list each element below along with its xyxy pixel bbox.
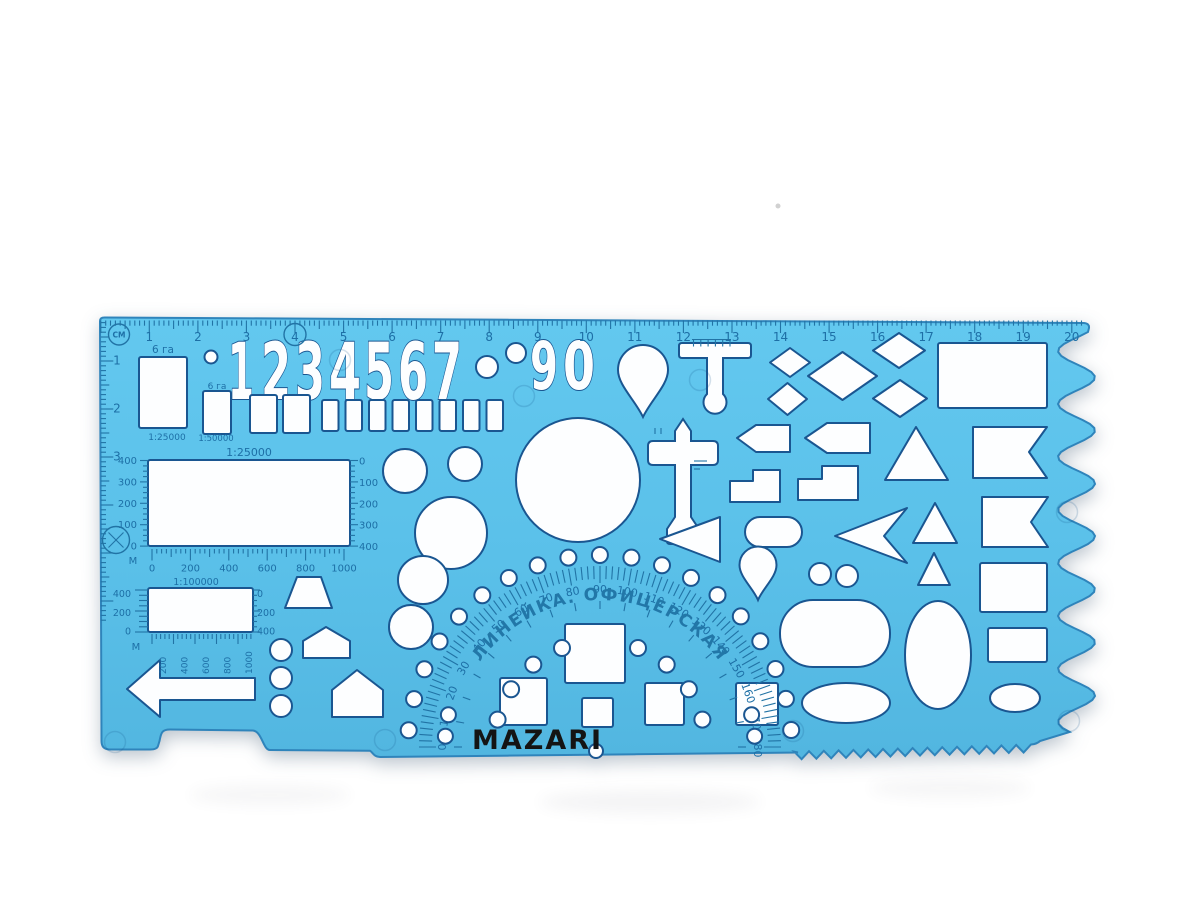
map-rect-100000 [148,588,253,632]
scale-number: 200 [257,608,275,619]
map-rect-25000 [148,460,350,546]
ruler-number: 7 [437,330,445,344]
ruler-number: 18 [967,330,982,344]
protractor-hole [406,691,422,707]
circle-cutout [476,356,498,378]
protractor-hole [503,681,519,697]
ruler-number: 17 [918,330,933,344]
protractor-hole [683,570,699,586]
scale-number: 0 [149,564,155,575]
protractor-hole [451,609,467,625]
area-square-label: 6 га [208,382,227,392]
protractor-hole [530,557,546,573]
ruler-number: 10 [579,330,594,344]
protractor-hole [778,691,794,707]
ellipse-cutout [398,556,448,604]
square-cutout [487,400,504,431]
square-cutout [322,400,339,431]
protractor-hole [592,547,608,563]
protractor-hole [432,634,448,650]
ruler-number: 9 [534,330,542,344]
square-cutout [346,400,363,431]
ruler-number: 3 [243,330,251,344]
scale-number: 100 [118,520,137,531]
template-photo: 123456790 123456789101112131415161718192… [0,0,1200,900]
square-cutout [645,683,684,725]
ruler-number: 11 [627,330,642,344]
scale-number: 400 [118,456,137,467]
ruler-number: 1 [113,354,121,368]
ruler-number: 15 [821,330,836,344]
area-square-scale: 1:50000 [198,434,233,444]
ruler-number: 20 [1064,330,1079,344]
scale-number: 0 [125,627,131,638]
ellipse-vertical-cutout [905,601,971,709]
ruler-number: 5 [340,330,348,344]
scale-number: 200 [113,608,131,619]
brand-text: MAZARI [472,725,603,756]
ruler-number: 19 [1016,330,1031,344]
protractor-hole [744,707,759,722]
stencil-ruler: 123456790 123456789101112131415161718192… [100,318,1095,760]
ruler-number: 12 [676,330,691,344]
protractor-hole [441,707,456,722]
protractor-hole [681,681,697,697]
protractor-hole [554,640,570,656]
ruler-number: 13 [724,330,739,344]
ruler-number: 8 [485,330,493,344]
circle-cutout [809,563,831,585]
protractor-hole [733,608,749,624]
area-square-scale: 1:25000 [148,433,186,443]
circle-cutout [205,351,218,364]
dust-speck [776,204,781,209]
scale-number: 400 [359,542,378,553]
protractor-hole [501,570,517,586]
rect-cutout [980,563,1047,612]
protractor-hole [630,640,646,656]
protractor-hole [752,633,768,649]
scale-number: 1000 [331,564,356,575]
square-cutout [283,395,310,433]
circle-cutout [836,565,858,587]
circle-cutout [389,605,433,649]
protractor-hole [710,587,726,603]
protractor-hole [474,587,490,603]
protractor-hole [438,729,453,744]
protractor-hole [623,550,639,566]
circle-cutout [270,695,292,717]
scale-number: 400 [181,657,191,674]
square-cutout [440,400,457,431]
protractor-hole [768,661,784,677]
square-cutout [393,400,410,431]
scale-number: 100 [359,478,378,489]
scale-number: 200 [181,564,200,575]
ellipse-cutout [802,683,890,723]
stadium-cutout [745,517,802,547]
scale-number: 200 [159,657,169,674]
ruler-number: 1 [145,330,153,344]
square-cutout [369,400,386,431]
scale-number: 0 [257,589,263,600]
stadium-large-cutout [780,600,890,667]
protractor-hole [416,661,432,677]
circle-cutout [383,449,427,493]
scale-number: 800 [224,657,234,674]
square-cutout [250,395,277,433]
scale-number: 1000 [245,651,255,674]
protractor-hole [525,657,541,673]
ruler-number: 6 [388,330,396,344]
protractor-hole [654,557,670,573]
degree-label: 0 [436,744,449,751]
circle-cutout [448,447,482,481]
protractor-hole [747,729,762,744]
scale-number: 400 [113,589,131,600]
area-square-25000 [139,357,187,428]
ruler-number: 4 [291,330,299,344]
protractor-hole [694,712,710,728]
scale-number: 200 [118,499,137,510]
protractor-hole [560,550,576,566]
map-scale-title: 1:25000 [226,446,272,459]
ruler-number: 14 [773,330,788,344]
protractor-hole [401,722,417,738]
scale-number: 300 [118,477,137,488]
scale-number: 600 [258,564,277,575]
photo-stage: 123456790 123456789101112131415161718192… [0,0,1200,900]
scale-number: 0 [131,542,137,553]
area-square-label: 6 га [152,344,174,356]
protractor-hole [659,657,675,673]
square-cutout [565,624,625,683]
meters-label: М [129,556,138,567]
protractor-hole [783,722,799,738]
square-cutout [416,400,433,431]
scale-number: 0 [359,457,365,468]
scale-number: 400 [219,564,238,575]
ruler-number: 2 [194,330,202,344]
circle-cutout [270,639,292,661]
circle-cutout [270,667,292,689]
rect-cutout [988,628,1047,662]
ruler-number: 16 [870,330,885,344]
area-square-50000 [203,391,231,434]
big-circle-cutout [516,418,640,542]
ejector-pin-mark [1059,711,1080,732]
scale-number: 300 [359,521,378,532]
cm-unit-label: СМ [113,331,126,340]
square-cutout [582,698,613,727]
ellipse-cutout [990,684,1040,712]
map-scale-title: 1:100000 [173,577,219,588]
rect-large-cutout [938,343,1047,408]
ruler-number: 2 [113,402,121,416]
scale-number: 800 [296,564,315,575]
circle-cutout [506,343,526,363]
square-cutout [463,400,480,431]
scale-number: 200 [359,499,378,510]
meters-label: М [132,642,141,653]
scale-number: 600 [202,657,212,674]
